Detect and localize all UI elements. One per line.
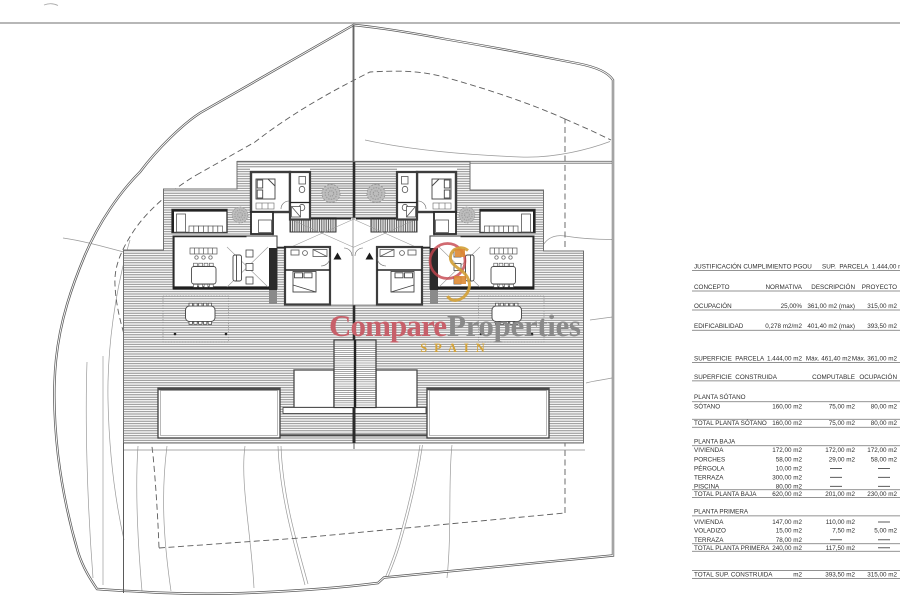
svg-text:CONCEPTO: CONCEPTO [694, 284, 730, 291]
svg-text:JUSTIFICACIÓN CUMPLIMIENTO PGO: JUSTIFICACIÓN CUMPLIMIENTO PGOU [694, 262, 812, 271]
svg-text:SUPERFICIE PARCELA: SUPERFICIE PARCELA [694, 355, 765, 362]
svg-text:VIVIENDA: VIVIENDA [694, 519, 724, 526]
svg-text:29,00 m2: 29,00 m2 [829, 456, 856, 463]
svg-text:OCUPACIÓN: OCUPACIÓN [694, 301, 732, 310]
svg-text:160,00 m2: 160,00 m2 [772, 404, 802, 411]
svg-text:Máx. 461,40 m2: Máx. 461,40 m2 [806, 355, 852, 362]
svg-text:300,00 m2: 300,00 m2 [772, 474, 802, 481]
svg-text:7,50 m2: 7,50 m2 [832, 528, 855, 535]
svg-text:230,00 m2: 230,00 m2 [867, 491, 897, 498]
svg-text:80,00 m2: 80,00 m2 [871, 404, 898, 411]
svg-text:VOLADIZO: VOLADIZO [694, 528, 726, 535]
svg-text:147,00 m2: 147,00 m2 [772, 519, 802, 526]
svg-text:393,50 m2: 393,50 m2 [867, 323, 897, 330]
svg-text:PROYECTO: PROYECTO [862, 284, 897, 291]
svg-text:401,40 m2 (max): 401,40 m2 (max) [807, 323, 855, 330]
svg-text:DESCRIPCIÓN: DESCRIPCIÓN [811, 282, 855, 291]
svg-text:315,00 m2: 315,00 m2 [867, 303, 897, 310]
svg-text:m2: m2 [793, 572, 802, 579]
svg-text:75,00 m2: 75,00 m2 [829, 420, 856, 427]
svg-text:78,00 m2: 78,00 m2 [776, 537, 803, 544]
svg-text:OCUPACIÓN: OCUPACIÓN [859, 372, 897, 381]
svg-text:PISCINA: PISCINA [694, 483, 720, 490]
svg-text:201,00 m2: 201,00 m2 [825, 491, 855, 498]
svg-text:1.444,00 m2: 1.444,00 m2 [767, 355, 803, 362]
svg-text:75,00 m2: 75,00 m2 [829, 404, 856, 411]
svg-text:TOTAL PLANTA PRIMERA: TOTAL PLANTA PRIMERA [694, 545, 770, 552]
svg-text:620,00 m2: 620,00 m2 [772, 491, 802, 498]
svg-text:160,00 m2: 160,00 m2 [772, 420, 802, 427]
svg-text:393,50 m2: 393,50 m2 [825, 572, 855, 579]
svg-text:SUP. PARCELA 1.444,00 m2: SUP. PARCELA 1.444,00 m2 [822, 264, 900, 271]
svg-text:SÓTANO: SÓTANO [694, 402, 720, 411]
svg-text:58,00 m2: 58,00 m2 [871, 456, 898, 463]
svg-text:TOTAL PLANTA BAJA: TOTAL PLANTA BAJA [694, 491, 757, 498]
svg-text:Compare: Compare [329, 308, 447, 343]
svg-text:172,00 m2: 172,00 m2 [772, 447, 802, 454]
svg-text:80,00 m2: 80,00 m2 [871, 420, 898, 427]
svg-text:VIVIENDA: VIVIENDA [694, 447, 724, 454]
svg-text:PLANTA BAJA: PLANTA BAJA [694, 439, 736, 446]
svg-text:240,00 m2: 240,00 m2 [772, 545, 802, 552]
svg-text:NORMATIVA: NORMATIVA [766, 284, 803, 291]
svg-text:25,00%: 25,00% [781, 303, 803, 310]
svg-text:315,00 m2: 315,00 m2 [867, 572, 897, 579]
svg-text:PLANTA PRIMERA: PLANTA PRIMERA [694, 509, 749, 516]
svg-text:PLANTA SÓTANO: PLANTA SÓTANO [694, 392, 746, 401]
svg-text:10,00 m2: 10,00 m2 [776, 466, 803, 473]
svg-text:TOTAL PLANTA SÓTANO: TOTAL PLANTA SÓTANO [694, 418, 767, 427]
svg-text:SPAIN: SPAIN [420, 341, 492, 355]
svg-text:TERRAZA: TERRAZA [694, 474, 724, 481]
svg-text:361,00 m2 (max): 361,00 m2 (max) [807, 303, 855, 310]
svg-text:80,00 m2: 80,00 m2 [776, 483, 803, 490]
svg-text:PORCHES: PORCHES [694, 456, 725, 463]
svg-text:SUPERFICIE CONSTRUIDA: SUPERFICIE CONSTRUIDA [694, 374, 778, 381]
svg-text:15,00 m2: 15,00 m2 [776, 528, 803, 535]
svg-text:EDIFICABILIDAD: EDIFICABILIDAD [694, 323, 744, 330]
svg-text:172,00 m2: 172,00 m2 [867, 447, 897, 454]
svg-text:0,278 m2/m2: 0,278 m2/m2 [765, 323, 802, 330]
svg-text:TERRAZA: TERRAZA [694, 537, 724, 544]
svg-text:117,50 m2: 117,50 m2 [826, 545, 856, 552]
svg-text:Properties: Properties [447, 308, 581, 343]
svg-text:5,00 m2: 5,00 m2 [874, 528, 897, 535]
svg-text:58,00 m2: 58,00 m2 [776, 456, 803, 463]
svg-text:PÉRGOLA: PÉRGOLA [694, 464, 725, 473]
svg-text:172,00 m2: 172,00 m2 [825, 447, 855, 454]
svg-text:Máx. 361,00 m2: Máx. 361,00 m2 [852, 355, 898, 362]
svg-text:TOTAL SUP. CONSTRUIDA: TOTAL SUP. CONSTRUIDA [694, 572, 773, 579]
svg-text:COMPUTABLE: COMPUTABLE [812, 374, 855, 381]
svg-text:110,00 m2: 110,00 m2 [826, 519, 856, 526]
